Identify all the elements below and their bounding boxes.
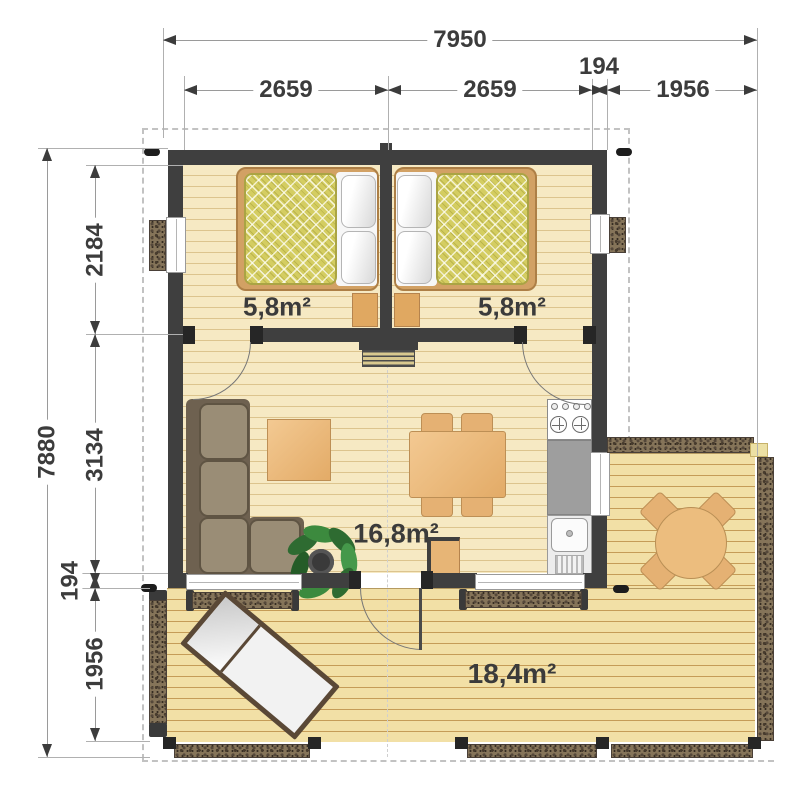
railing-post [596, 737, 609, 749]
railing-post [748, 737, 761, 749]
extension-line [86, 741, 150, 742]
bedroom-right-area-label: 5,8m² [478, 292, 546, 323]
stove-burner-right [572, 416, 589, 433]
bed-right-pillow-bottom [397, 231, 432, 284]
roof-outline-left-dashed [142, 128, 144, 760]
window-frame-line [600, 454, 601, 514]
sofa-cushion-1 [199, 403, 249, 460]
wall-bedroom-divider [380, 143, 392, 342]
dimension-width-seg-2: 2659 [457, 77, 522, 102]
burner-spoke [559, 418, 560, 430]
dimension-arrow [607, 85, 620, 95]
dimension-arrow [184, 85, 197, 95]
dimension-height-seg-1: 2184 [82, 217, 107, 282]
window-sill-left [149, 220, 166, 271]
window-right-bedroom [590, 214, 610, 254]
dimension-arrow [579, 85, 592, 95]
railing-post [308, 737, 321, 749]
door-post [250, 326, 263, 344]
nightstand-right [394, 293, 420, 327]
window-frame-line [189, 582, 298, 583]
railing-post [455, 737, 468, 749]
dimension-arrow [90, 728, 100, 741]
radiator-bar [359, 341, 418, 350]
coffee-table [267, 419, 331, 481]
dimension-arrow [42, 744, 52, 757]
railing-post [163, 737, 176, 749]
plant-pot [308, 549, 334, 575]
kitchen-counter [547, 440, 592, 515]
railing-bottom-1 [174, 744, 310, 758]
dimension-arrow [90, 560, 100, 573]
window-frame-line [478, 582, 582, 583]
door-post [421, 571, 433, 589]
railing-bottom-2 [467, 744, 597, 758]
dimension-arrow [90, 165, 100, 178]
dimension-width-seg-3: 194 [577, 54, 621, 79]
dimension-arrow [594, 85, 607, 95]
window-left-bedroom [166, 217, 186, 273]
dimension-arrow [375, 85, 388, 95]
corner-tick [144, 148, 160, 156]
dimension-width-seg-4: 1956 [650, 77, 715, 102]
dimension-arrow [744, 35, 757, 45]
burner-spoke [581, 418, 582, 430]
wall-partition-2 [252, 328, 518, 342]
wall-right-upper [592, 150, 607, 215]
wall-right-middle [592, 252, 607, 453]
bed-right-pillow-top [397, 175, 432, 228]
radiator-body [362, 350, 415, 367]
dimension-total-width: 7950 [427, 27, 492, 52]
window-sill-right [609, 217, 626, 253]
center-line-dashed [387, 345, 388, 757]
window-front-right [475, 574, 585, 590]
terrace-round-table [655, 507, 727, 579]
dimension-arrow [388, 85, 401, 95]
railing-corner-board [750, 443, 768, 457]
stove-knob [584, 403, 591, 410]
dimension-arrow [90, 321, 100, 334]
stove-knob [562, 403, 569, 410]
nightstand-left [352, 293, 378, 327]
dimension-height-seg-3: 194 [57, 559, 82, 603]
door-post [349, 571, 361, 589]
corner-tick [616, 148, 632, 156]
floor-plan: 5,8m² 5,8m² 16,8m² 18,4m² 7950 2659 2659… [0, 0, 800, 800]
dimension-total-height: 7880 [34, 419, 59, 484]
bed-left-mattress [244, 173, 337, 285]
bed-right-mattress [436, 173, 529, 285]
sofa-cushion-2 [199, 460, 249, 517]
extension-line [757, 28, 758, 456]
dimension-height-seg-2: 3134 [82, 422, 107, 487]
dimension-arrow [42, 148, 52, 161]
window-frame-line [600, 216, 601, 252]
bedroom-left-area-label: 5,8m² [243, 292, 311, 323]
dimension-arrow [163, 35, 176, 45]
dimension-arrow [90, 588, 100, 601]
extension-line [86, 334, 183, 335]
extension-line [38, 148, 168, 149]
roof-outline-top-dashed [142, 128, 630, 130]
bed-left-pillow-top [341, 175, 376, 228]
dimension-arrow [90, 575, 100, 588]
plot-outline-bottom-dashed [142, 760, 774, 762]
dining-table [409, 431, 506, 498]
window-front-left [186, 574, 302, 590]
sink-faucet [566, 530, 573, 537]
dimension-arrow [90, 334, 100, 347]
dimension-width-seg-1: 2659 [253, 77, 318, 102]
extension-line [38, 757, 150, 758]
wall-bottom-4 [583, 573, 607, 588]
sink-drainer [555, 555, 584, 574]
front-door-leaf [419, 588, 422, 650]
railing-left [149, 600, 167, 724]
railing-cap [149, 723, 167, 737]
railing-terrace-top [607, 437, 754, 453]
window-sill-front-right [465, 591, 582, 608]
railing-bottom-3 [611, 744, 753, 758]
extension-line [86, 165, 183, 166]
terrace-area-label: 18,4m² [468, 658, 557, 690]
sofa-cushion-3 [199, 517, 249, 574]
living-room-area-label: 16,8m² [353, 519, 439, 550]
stove-knob [551, 403, 558, 410]
dimension-arrow [744, 85, 757, 95]
dimension-height-seg-4: 1956 [82, 631, 107, 696]
bed-left-pillow-bottom [341, 231, 376, 284]
wall-bottom-1 [168, 573, 188, 588]
window-frame-line [176, 219, 177, 271]
railing-right [757, 457, 774, 741]
wall-left-upper [168, 150, 183, 218]
wall-left-lower [168, 272, 183, 588]
window-kitchen [590, 452, 610, 516]
corner-tick [613, 585, 629, 593]
stove-burner-left [550, 416, 567, 433]
